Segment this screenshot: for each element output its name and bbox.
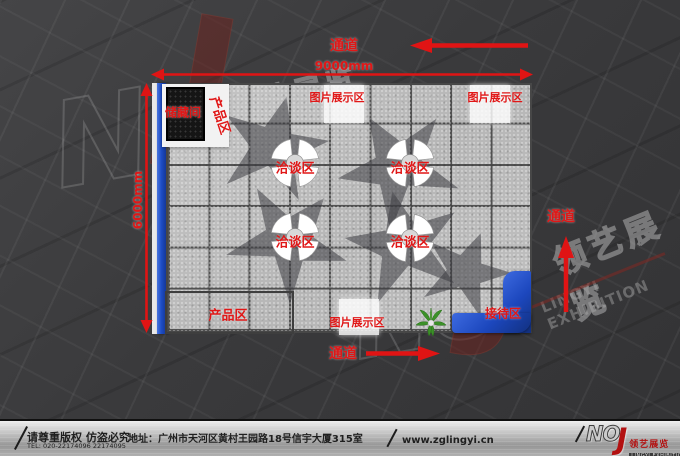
watermark-divider-line <box>516 252 665 315</box>
aisle-label-bottom: 通道 <box>329 343 357 363</box>
company-address: 地址：广州市天河区黄村王园路18号信宇大厦315室 <box>128 430 363 445</box>
reception-area-label: 接待区 <box>485 305 521 322</box>
plant-icon <box>415 308 447 338</box>
logo-letters-no: NO <box>586 422 619 446</box>
aisle-arrow-top <box>410 38 528 53</box>
design-proof-canvas: N J 领艺展览 N O J 领艺展览 LINGYI EXHIBITION <box>0 0 680 456</box>
display-area-top-mid-label: 图片展示区 <box>310 89 365 105</box>
aisle-arrow-bottom <box>366 346 440 361</box>
aisle-label-right: 通道 <box>547 206 575 226</box>
negotiation-area-label: 洽谈区 <box>275 232 314 251</box>
storage-room-label: 储藏间 <box>165 104 201 121</box>
negotiation-area-label: 洽谈区 <box>390 232 429 251</box>
company-logo: NO J 领艺展览 LINGYI EXHIBITION <box>586 422 680 456</box>
footer-tick <box>14 426 28 450</box>
display-area-bottom-label: 图片展示区 <box>330 314 385 330</box>
footer-tick <box>386 429 397 448</box>
dimension-height-label: 6000mm <box>131 171 145 229</box>
phone-number: TEL: 020-22174096 22174095 <box>27 442 126 450</box>
aisle-label-top: 通道 <box>330 35 358 55</box>
footer-tick <box>575 426 585 443</box>
footer-bar: 请尊重版权 仿盗必究 TEL: 020-22174096 22174095 地址… <box>0 419 680 456</box>
negotiation-area-label: 洽谈区 <box>275 158 314 177</box>
display-area-top-right-label: 图片展示区 <box>468 89 523 105</box>
negotiation-area-label: 洽谈区 <box>390 158 429 177</box>
product-area-bottom-label: 产品区 <box>208 305 247 324</box>
website-url: www.zglingyi.cn <box>402 435 494 446</box>
dimension-width-label: 9000mm <box>315 59 373 73</box>
logo-brand-cn: 领艺展览 <box>629 440 669 450</box>
aisle-arrow-right <box>558 236 574 312</box>
logo-letter-j: J <box>616 422 627 456</box>
